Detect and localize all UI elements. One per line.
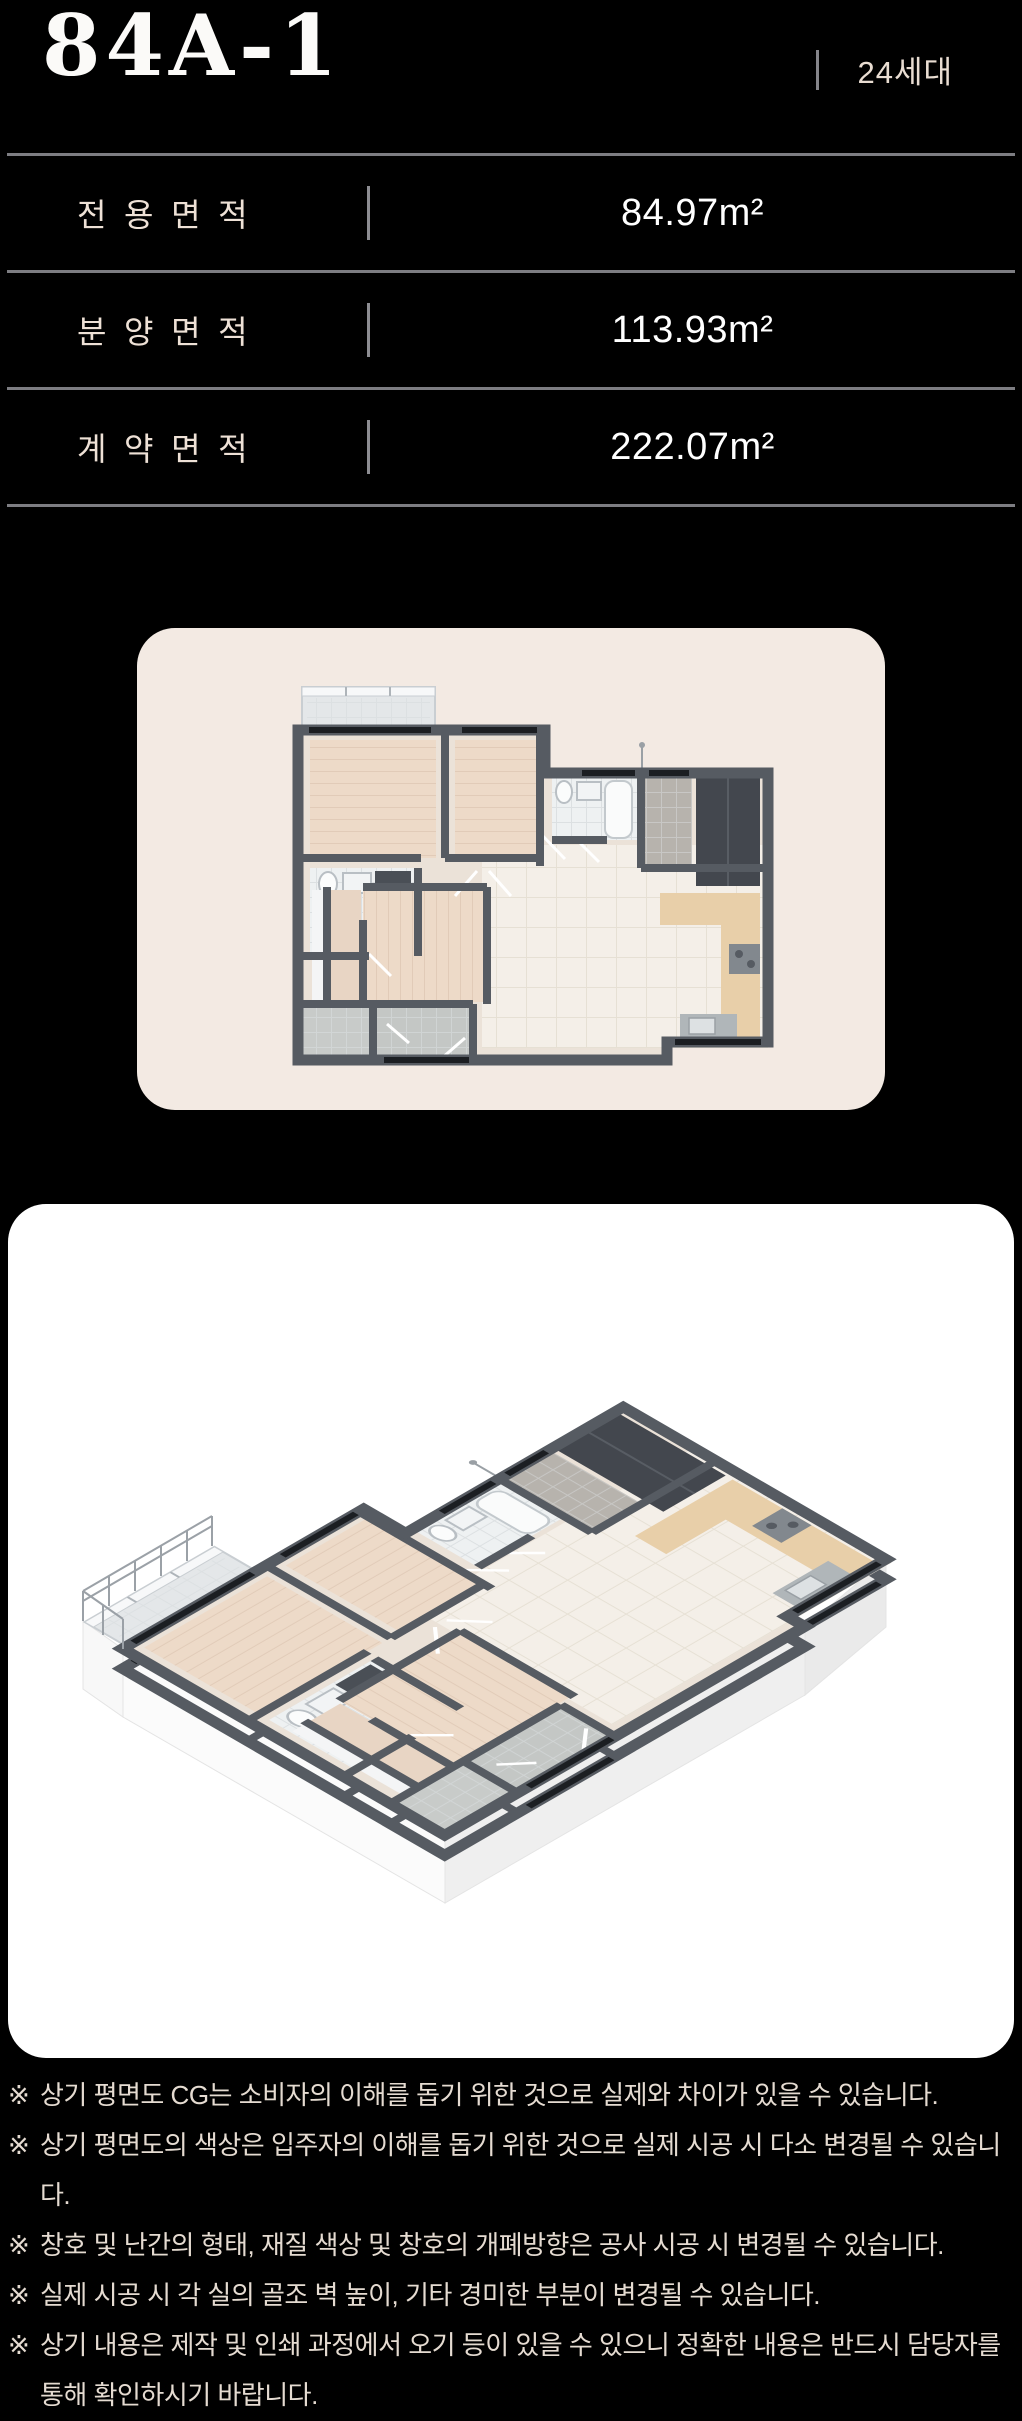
disclaimer-text: 상기 평면도의 색상은 입주자의 이해를 돕기 위한 것으로 실제 시공 시 다… (40, 2130, 1001, 2210)
table-row-contract-area: 계약면적 222.07m² (7, 390, 1015, 507)
floorplan-3d-image (8, 1204, 1014, 2058)
disclaimer-text: 실제 시공 시 각 실의 골조 벽 높이, 기타 경미한 부분이 변경될 수 있… (40, 2280, 820, 2310)
row-label-cell: 분양면적 (7, 307, 367, 353)
table-row-exclusive-area: 전용면적 84.97m² (7, 156, 1015, 273)
disclaimer-item: ※ 실제 시공 시 각 실의 골조 벽 높이, 기타 경미한 부분이 변경될 수… (8, 2270, 1016, 2320)
disclaimer-marker: ※ (8, 2070, 29, 2120)
row-value: 84.97m² (370, 192, 1015, 235)
row-value: 222.07m² (370, 426, 1015, 469)
units-divider-bar (816, 50, 819, 90)
disclaimer-text: 상기 내용은 제작 및 인쇄 과정에서 오기 등이 있을 수 있으니 정확한 내… (40, 2330, 1001, 2410)
disclaimer-marker: ※ (8, 2120, 29, 2170)
disclaimer-list: ※ 상기 평면도 CG는 소비자의 이해를 돕기 위한 것으로 실제와 차이가 … (8, 2070, 1016, 2420)
disclaimer-marker: ※ (8, 2320, 29, 2370)
table-row-supply-area: 분양면적 113.93m² (7, 273, 1015, 390)
floorplan-2d-image (137, 628, 885, 1110)
floorplan-3d-card (8, 1204, 1014, 2058)
bedroom-2 (455, 740, 540, 858)
header: 84A-1 24세대 (0, 0, 1022, 153)
bathroom-2 (552, 778, 637, 840)
row-label: 분양면적 (77, 314, 265, 350)
disclaimer-text: 상기 평면도 CG는 소비자의 이해를 돕기 위한 것으로 실제와 차이가 있을… (40, 2080, 938, 2110)
disclaimer-marker: ※ (8, 2220, 29, 2270)
area-table: 전용면적 84.97m² 분양면적 113.93m² 계약면적 222.07m² (7, 153, 1015, 507)
disclaimer-item: ※ 상기 평면도 CG는 소비자의 이해를 돕기 위한 것으로 실제와 차이가 … (8, 2070, 1016, 2120)
floorplan-2d-card (137, 628, 885, 1110)
row-label: 전용면적 (77, 197, 265, 233)
units-count: 24세대 (857, 47, 953, 92)
disclaimer-text: 창호 및 난간의 형태, 재질 색상 및 창호의 개폐방향은 공사 시공 시 변… (40, 2230, 944, 2260)
pipe-head (639, 742, 645, 748)
bedroom-3 (312, 890, 485, 1002)
row-value: 113.93m² (370, 309, 1015, 352)
balcony-bottom-left (300, 1006, 370, 1056)
disclaimer-item: ※ 상기 평면도의 색상은 입주자의 이해를 돕기 위한 것으로 실제 시공 시… (8, 2120, 1016, 2220)
page-title: 84A-1 (42, 4, 342, 88)
units-count-group: 24세대 (816, 47, 953, 92)
row-label: 계약면적 (77, 431, 265, 467)
disclaimer-item: ※ 창호 및 난간의 형태, 재질 색상 및 창호의 개폐방향은 공사 시공 시… (8, 2220, 1016, 2270)
disclaimer-item: ※ 상기 내용은 제작 및 인쇄 과정에서 오기 등이 있을 수 있으니 정확한… (8, 2320, 1016, 2420)
row-label-cell: 전용면적 (7, 190, 367, 236)
disclaimer-marker: ※ (8, 2270, 29, 2320)
bedroom-1 (310, 740, 436, 858)
balcony-bottom-center (375, 1004, 473, 1056)
row-label-cell: 계약면적 (7, 424, 367, 470)
